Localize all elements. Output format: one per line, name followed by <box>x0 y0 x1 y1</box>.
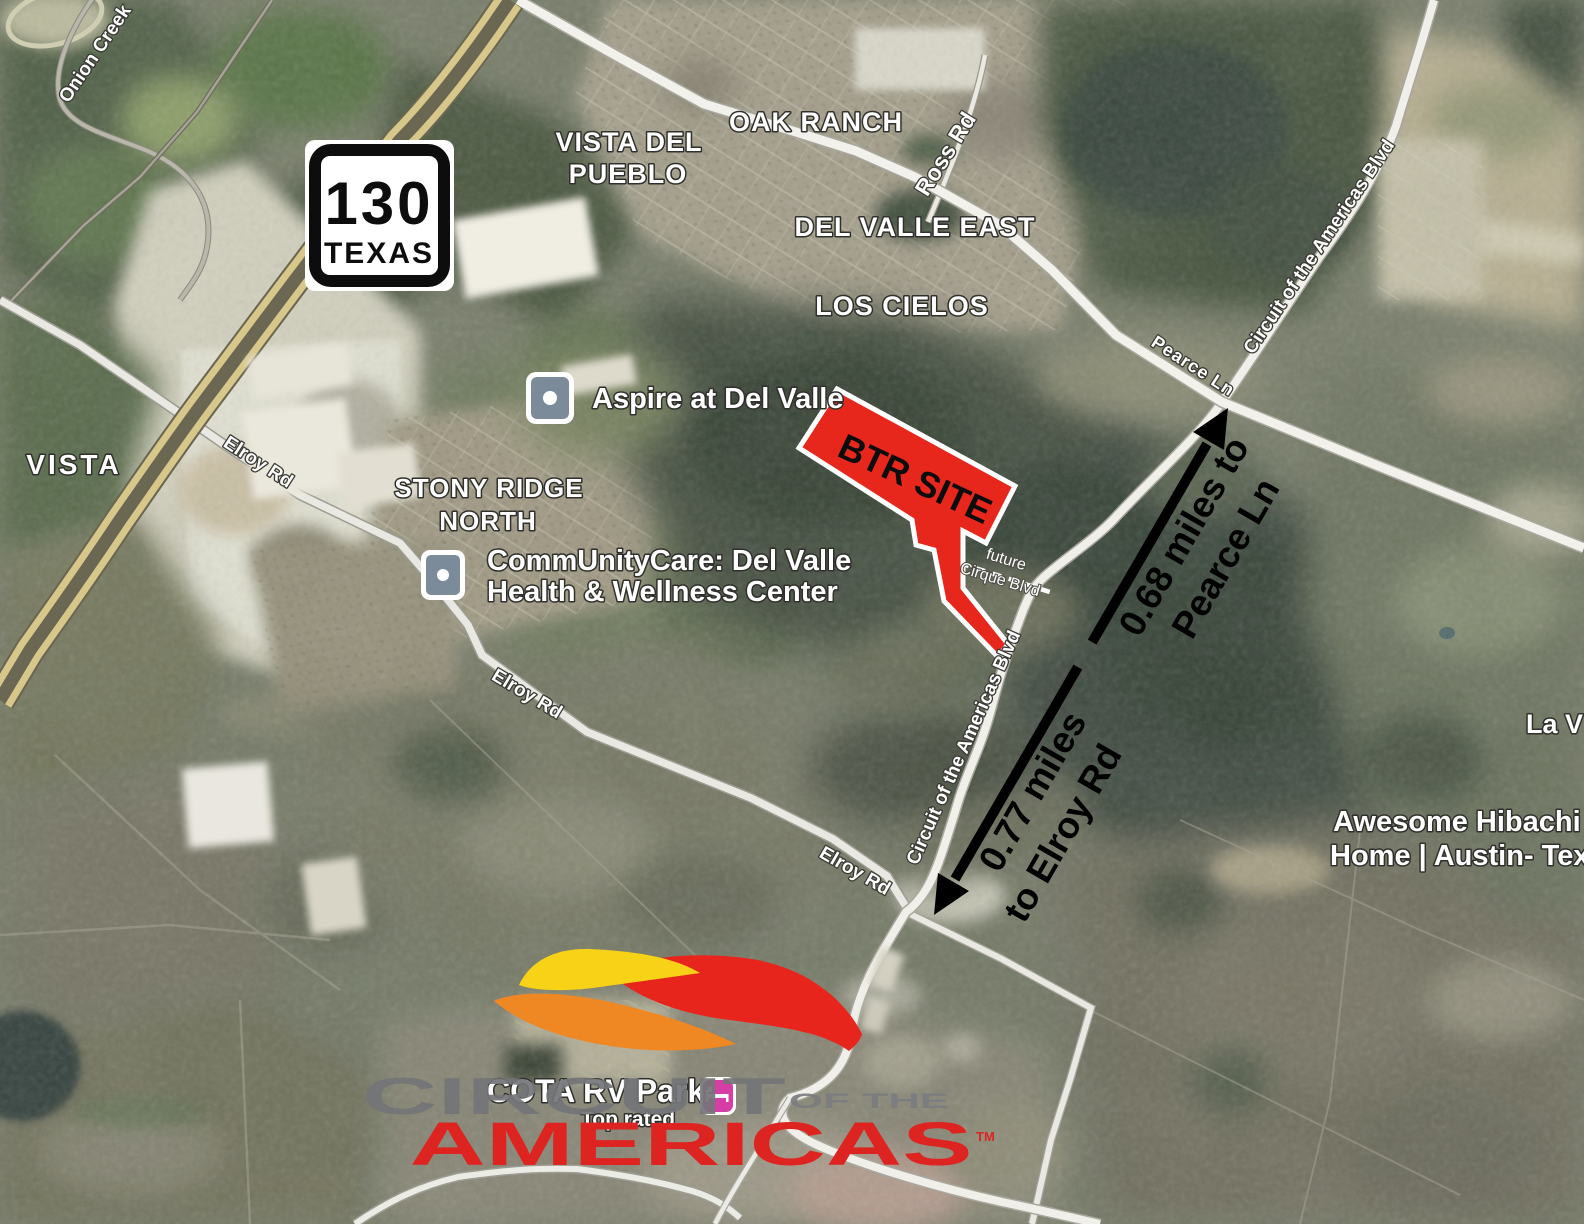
svg-text:Aspire at Del Valle: Aspire at Del Valle <box>592 383 843 415</box>
svg-text:Health & Wellness Center: Health & Wellness Center <box>487 576 838 608</box>
svg-text:TEXAS: TEXAS <box>324 237 434 270</box>
svg-text:DEL VALLE EAST: DEL VALLE EAST <box>794 212 1035 242</box>
svg-text:AMERICAS: AMERICAS <box>410 1110 973 1178</box>
svg-text:VISTA DEL: VISTA DEL <box>555 127 702 157</box>
svg-text:STONY RIDGE: STONY RIDGE <box>394 473 583 503</box>
svg-text:VISTA: VISTA <box>26 449 121 480</box>
svg-text:130: 130 <box>324 170 433 237</box>
svg-text:OAK RANCH: OAK RANCH <box>729 107 903 137</box>
svg-text:Awesome Hibachi At: Awesome Hibachi At <box>1333 806 1584 838</box>
svg-text:PUEBLO: PUEBLO <box>569 159 688 189</box>
svg-text:LOS CIELOS: LOS CIELOS <box>815 291 989 321</box>
svg-text:TM: TM <box>976 1129 995 1144</box>
svg-text:Home | Austin- Texas: Home | Austin- Texas <box>1330 840 1584 872</box>
svg-text:CommUnityCare: Del Valle: CommUnityCare: Del Valle <box>487 545 851 577</box>
svg-text:NORTH: NORTH <box>439 506 536 536</box>
svg-text:La V: La V <box>1526 709 1583 739</box>
